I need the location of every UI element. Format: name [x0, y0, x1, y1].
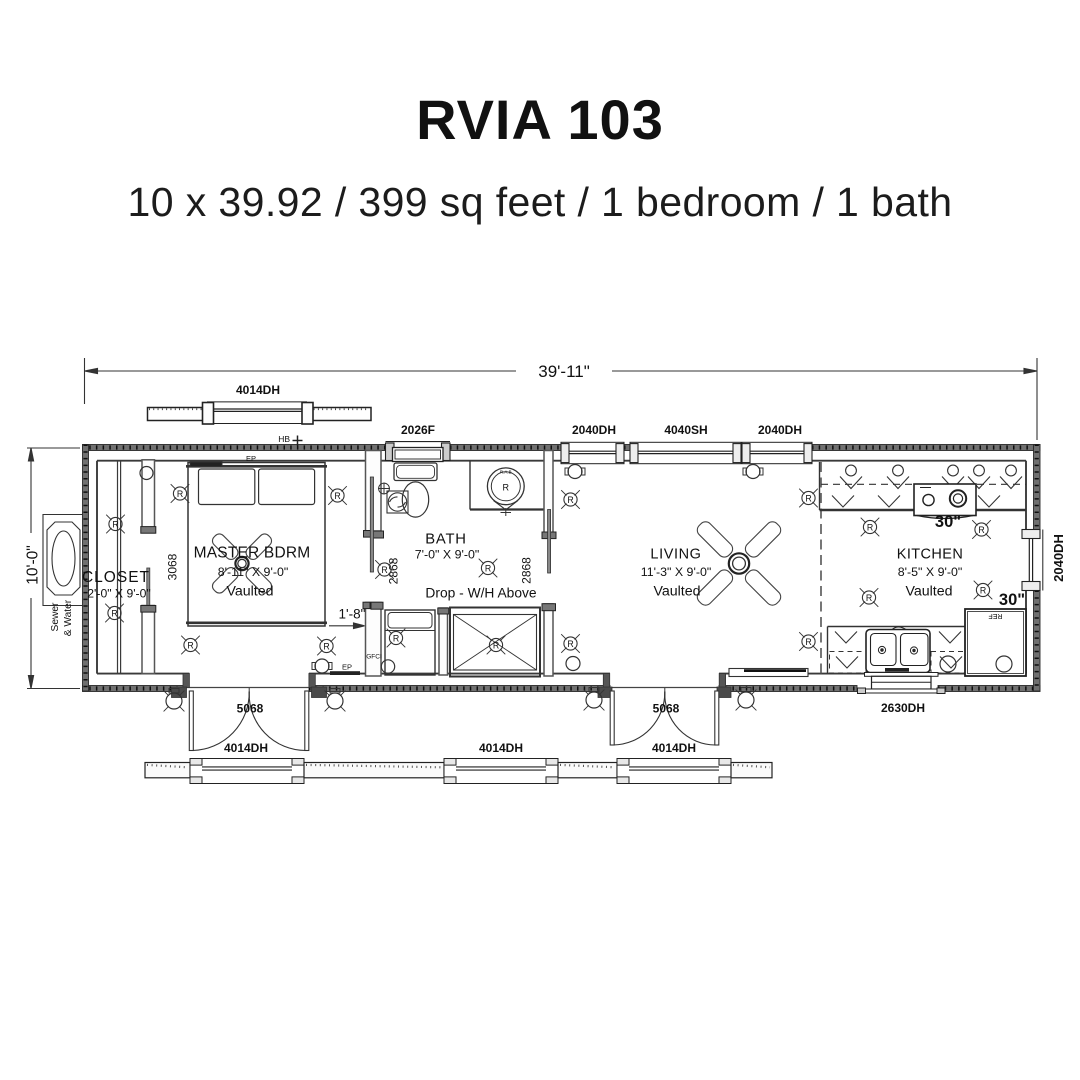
svg-text:2630DH: 2630DH: [881, 701, 925, 715]
svg-text:2040DH: 2040DH: [572, 423, 616, 437]
svg-text:8'-11" X 9'-0": 8'-11" X 9'-0": [218, 565, 288, 579]
svg-text:2026F: 2026F: [401, 423, 435, 437]
svg-text:R: R: [805, 493, 811, 503]
svg-text:4014DH: 4014DH: [236, 383, 280, 397]
svg-text:5068: 5068: [237, 702, 264, 716]
svg-text:R: R: [867, 522, 873, 532]
svg-text:R: R: [177, 489, 183, 499]
svg-text:& Water: & Water: [63, 599, 74, 636]
svg-text:R: R: [187, 640, 193, 650]
svg-text:BATH: BATH: [425, 532, 467, 548]
svg-text:KITCHEN: KITCHEN: [897, 547, 963, 563]
svg-text:MASTER BDRM: MASTER BDRM: [194, 545, 311, 562]
svg-text:HB: HB: [278, 434, 290, 444]
svg-text:R: R: [980, 585, 986, 595]
svg-text:EP: EP: [342, 663, 352, 672]
svg-text:7'-0" X 9'-0": 7'-0" X 9'-0": [415, 548, 480, 562]
svg-text:4014DH: 4014DH: [224, 741, 268, 755]
svg-text:30": 30": [999, 591, 1025, 609]
svg-text:LIVING: LIVING: [650, 547, 701, 563]
svg-text:R: R: [323, 641, 329, 651]
svg-text:R: R: [393, 633, 399, 643]
svg-text:R: R: [111, 608, 117, 618]
svg-text:30": 30": [935, 513, 961, 531]
svg-text:GFCI: GFCI: [366, 654, 382, 661]
svg-text:EP: EP: [246, 454, 256, 463]
svg-text:11'-3" X 9'-0": 11'-3" X 9'-0": [641, 565, 711, 579]
svg-text:R: R: [567, 495, 573, 505]
svg-text:10'-0": 10'-0": [25, 545, 42, 584]
svg-text:2'-0" X 9'-0": 2'-0" X 9'-0": [87, 587, 150, 601]
svg-text:5068: 5068: [653, 702, 680, 716]
svg-text:2868: 2868: [520, 557, 534, 584]
svg-text:Drop - W/H Above: Drop - W/H Above: [425, 586, 537, 601]
svg-text:R: R: [805, 637, 811, 647]
svg-text:R: R: [381, 565, 387, 575]
svg-text:Vaulted: Vaulted: [653, 584, 700, 600]
svg-text:REF: REF: [989, 612, 1003, 619]
svg-text:R: R: [567, 639, 573, 649]
svg-text:39'-11": 39'-11": [538, 362, 590, 381]
svg-text:2868: 2868: [387, 557, 401, 584]
svg-text:Sewer: Sewer: [50, 602, 61, 631]
svg-text:2040DH: 2040DH: [758, 423, 802, 437]
svg-text:2040DH: 2040DH: [1051, 534, 1066, 582]
svg-text:R: R: [978, 525, 984, 535]
svg-text:Vaulted: Vaulted: [226, 584, 273, 600]
svg-text:4014DH: 4014DH: [479, 741, 523, 755]
svg-text:R: R: [485, 563, 491, 573]
svg-text:R: R: [503, 483, 510, 493]
svg-text:R: R: [334, 491, 340, 501]
svg-text:8'-5" X 9'-0": 8'-5" X 9'-0": [898, 565, 963, 579]
svg-text:3068: 3068: [166, 553, 180, 580]
svg-text:CLOSET: CLOSET: [82, 569, 150, 586]
svg-text:R.A.B: R.A.B: [500, 470, 512, 475]
svg-text:R: R: [493, 640, 499, 650]
svg-text:R: R: [866, 593, 872, 603]
svg-text:R: R: [112, 519, 118, 529]
svg-text:1'-8": 1'-8": [339, 607, 366, 622]
svg-text:4014DH: 4014DH: [652, 741, 696, 755]
svg-text:Vaulted: Vaulted: [905, 584, 952, 600]
svg-text:4040SH: 4040SH: [664, 423, 707, 437]
